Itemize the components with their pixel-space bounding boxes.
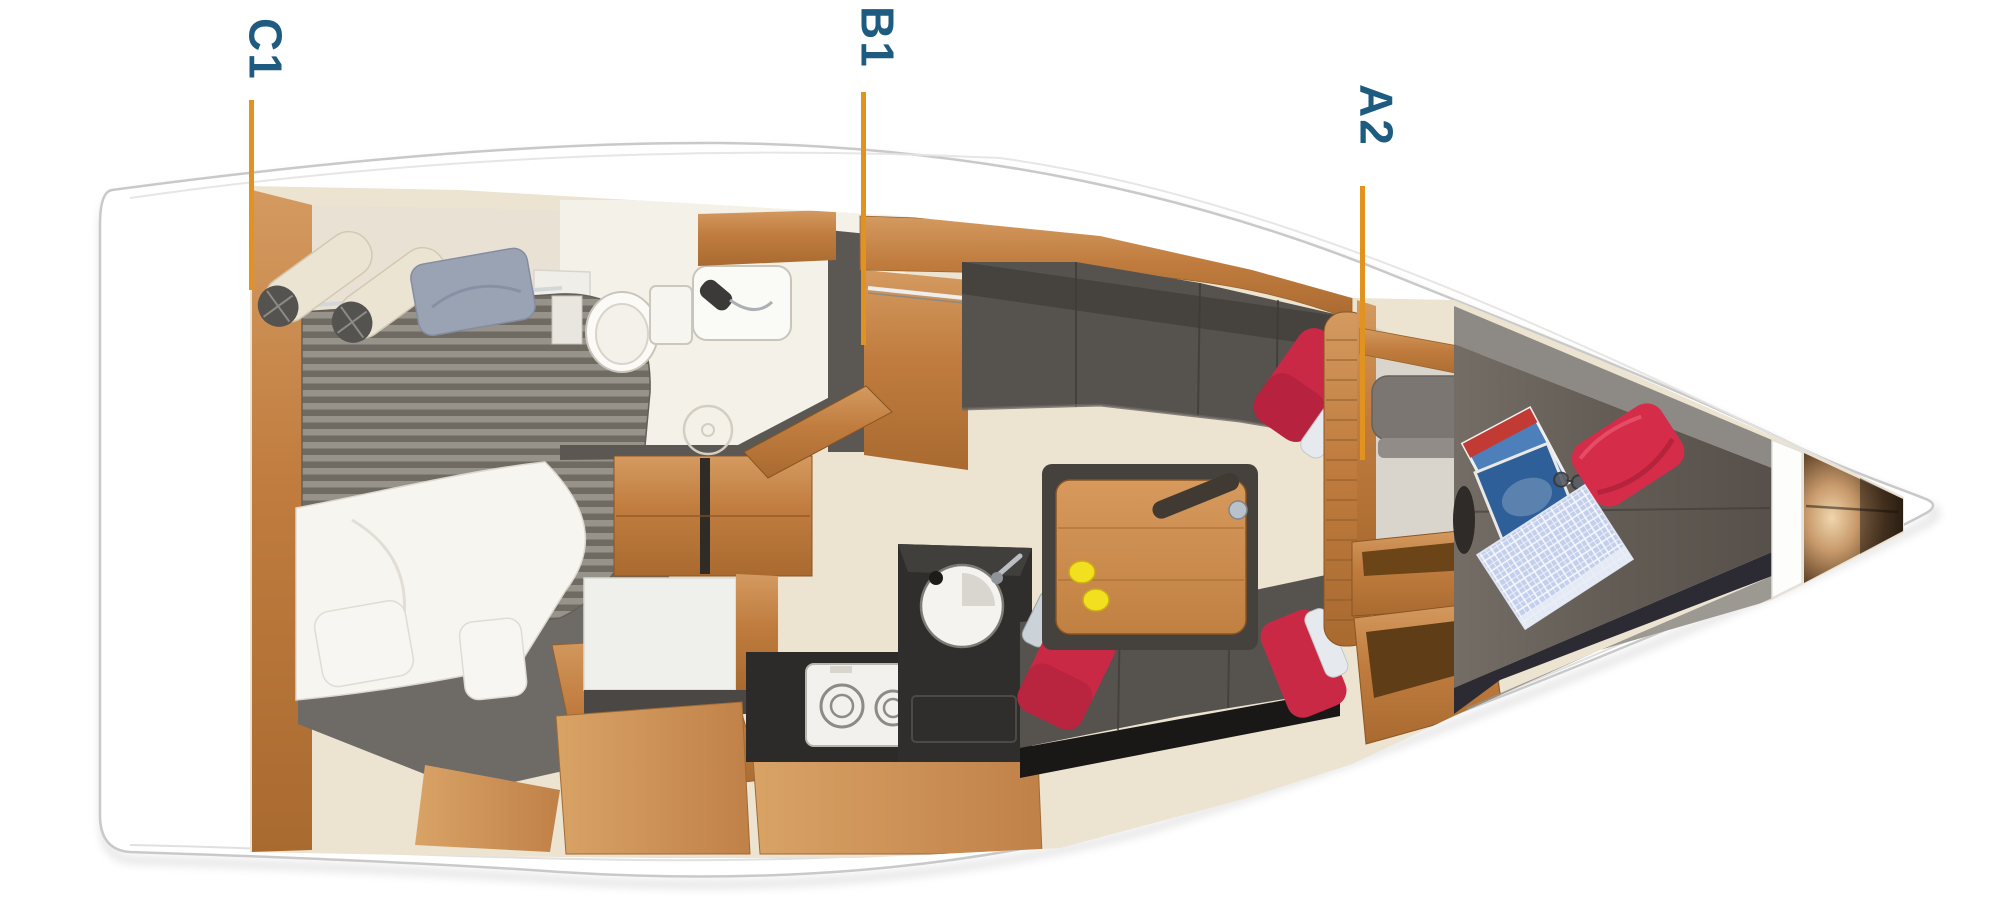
bow-bulkhead-white <box>1772 440 1802 598</box>
saloon-table-wood <box>1056 480 1246 634</box>
stove-handle <box>830 666 852 673</box>
pillow <box>312 598 416 689</box>
toilet-tank <box>650 286 692 344</box>
lemon <box>1069 561 1095 583</box>
wash-basin <box>552 296 582 344</box>
lemon <box>1083 589 1109 611</box>
faucet-base <box>991 572 1003 584</box>
sink-knob <box>929 571 943 585</box>
section-line-B1 <box>861 92 866 345</box>
speaker <box>1453 486 1475 554</box>
shower-tray <box>693 266 791 340</box>
section-label-B1: B1 <box>853 6 901 69</box>
pillow <box>458 617 528 701</box>
floorplan-drawing <box>0 0 2000 906</box>
section-label-C1: C1 <box>241 18 289 81</box>
section-label-A2: A2 <box>1352 84 1400 147</box>
head-top-locker-wood <box>698 210 836 266</box>
lower-wall <box>584 578 736 690</box>
galley-aft-panel-wood <box>864 270 968 470</box>
winch-handle-knob <box>1229 501 1247 519</box>
interior <box>248 180 1910 870</box>
section-line-A2 <box>1360 186 1365 460</box>
section-line-C1 <box>249 100 254 290</box>
yacht-floorplan-canvas: C1 B1 A2 <box>0 0 2000 906</box>
floor-wood-left <box>556 702 750 854</box>
toilet-seat <box>596 304 648 364</box>
